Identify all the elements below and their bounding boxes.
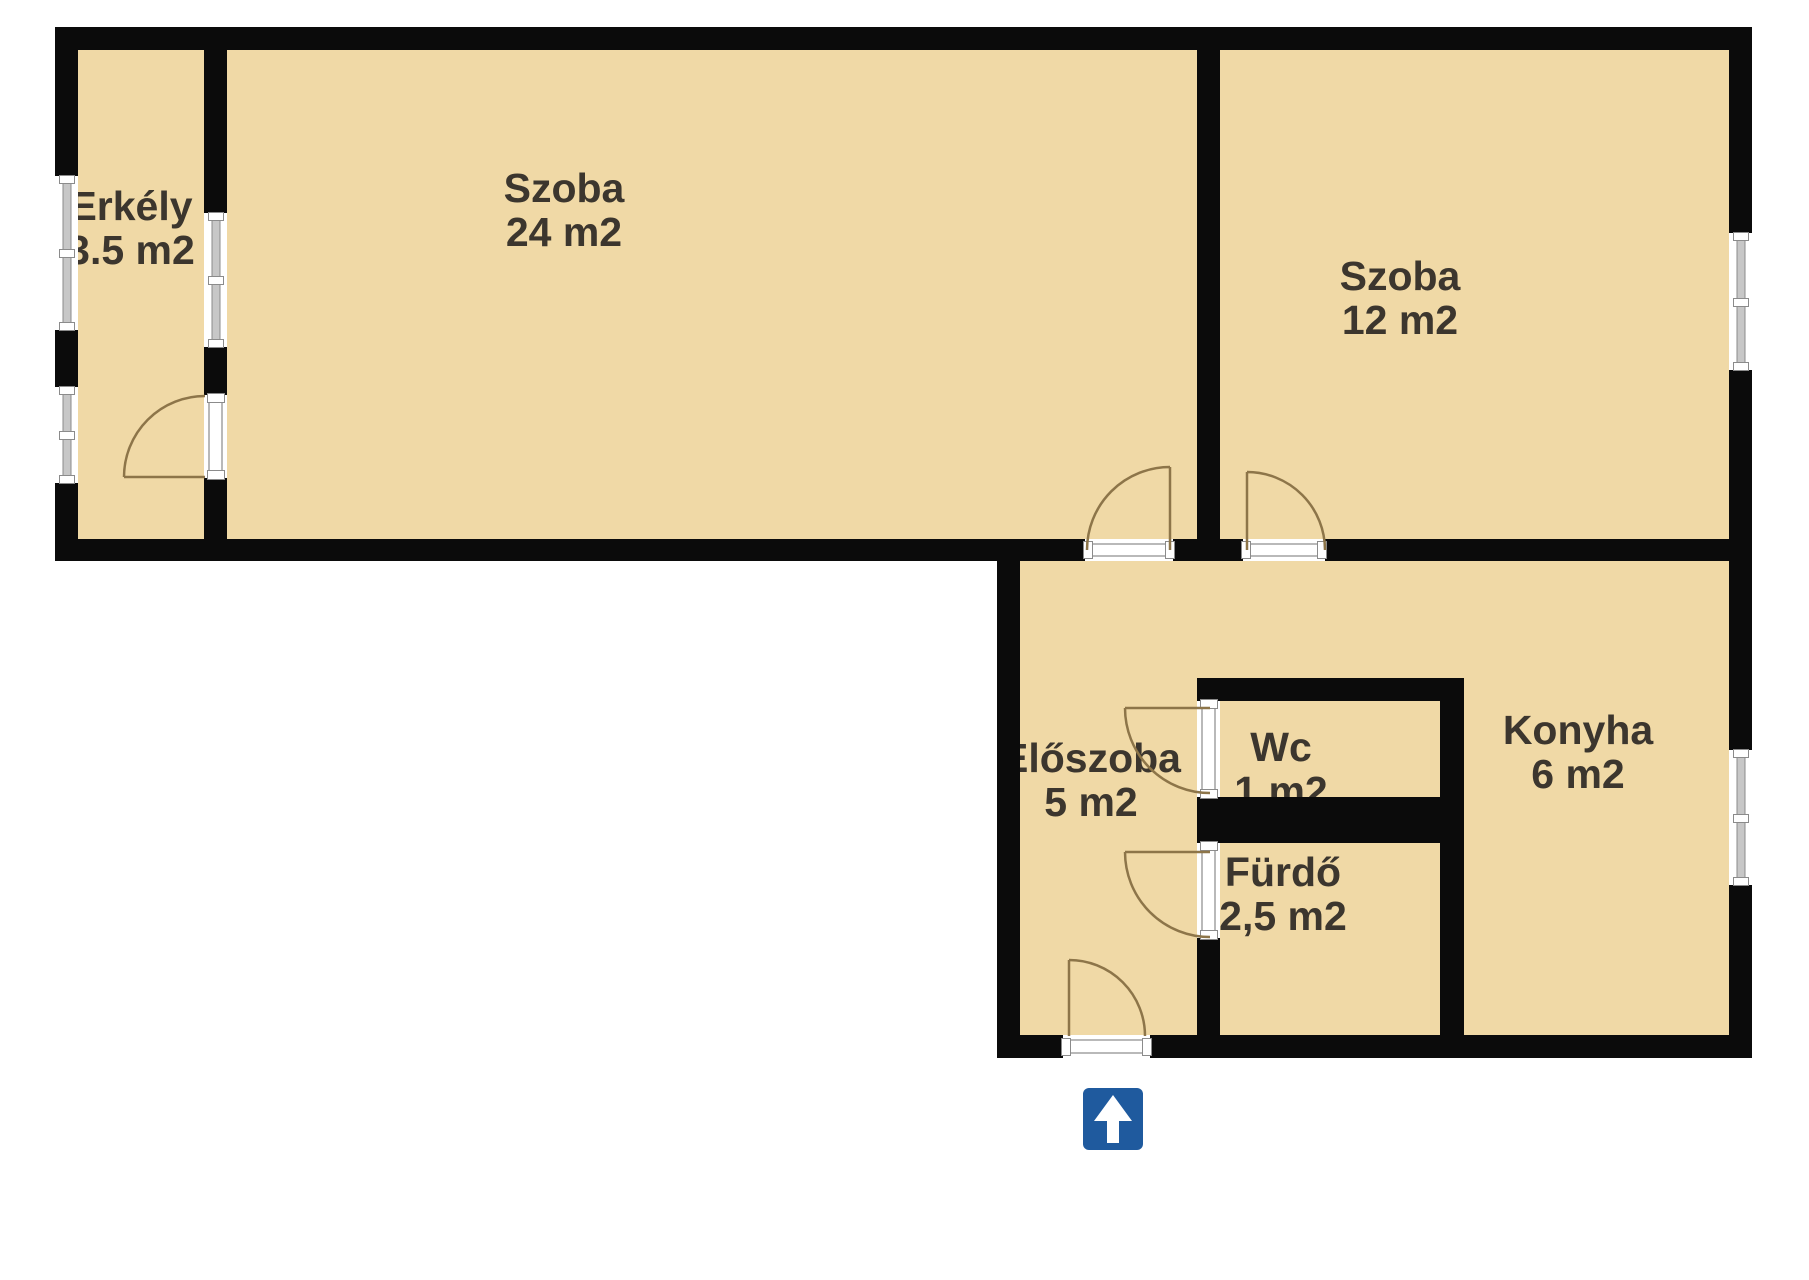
entrance-door-opening: [1063, 1035, 1150, 1058]
room-label-szoba-small: Szoba 12 m2: [1340, 254, 1461, 342]
room-name: Szoba: [1340, 253, 1461, 299]
room-label-furdo: Fürdő 2,5 m2: [1219, 850, 1347, 938]
floor-plan: Erkély 3.5 m2 Szoba 24 m2 Szoba 12 m2 El…: [0, 0, 1809, 1280]
szoba-small-door-opening: [1243, 539, 1325, 561]
room-label-erkely: Erkély 3.5 m2: [67, 184, 195, 272]
room-label-konyha: Konyha 6 m2: [1503, 708, 1653, 796]
room-area: 3.5 m2: [67, 227, 195, 273]
room-area: 12 m2: [1342, 297, 1458, 343]
balcony-door-opening: [204, 395, 227, 478]
room-name: Fürdő: [1225, 849, 1341, 895]
up-arrow-icon: [1083, 1088, 1143, 1150]
konyha-window: [1729, 750, 1752, 885]
room-name: Wc: [1250, 724, 1312, 770]
room-name: Előszoba: [1001, 735, 1181, 781]
room-label-eloszoba: Előszoba 5 m2: [1001, 736, 1181, 824]
room-label-szoba-large: Szoba 24 m2: [504, 166, 625, 254]
wall-eloszoba-furdo-lower: [1197, 938, 1220, 1058]
wall-wc-konyha: [1440, 678, 1464, 1058]
room-name: Szoba: [504, 165, 625, 211]
balcony-window-upper: [55, 176, 78, 330]
room-area: 6 m2: [1531, 751, 1624, 797]
wall-wc-top: [1197, 678, 1464, 701]
wall-mid-horizontal: [55, 539, 1752, 561]
room-area: 5 m2: [1044, 779, 1137, 825]
balcony-room-window: [204, 213, 227, 347]
wall-lower-left: [997, 561, 1020, 1058]
wc-door-opening: [1197, 701, 1220, 797]
wall-outer-top: [55, 27, 1752, 50]
wall-room-divider: [1197, 27, 1220, 561]
room-area: 24 m2: [506, 209, 622, 255]
room-floor-upper-block: [55, 27, 1752, 561]
room-name: Konyha: [1503, 707, 1653, 753]
room-area: 2,5 m2: [1219, 893, 1347, 939]
entrance-arrow-sign: [1083, 1088, 1143, 1150]
room-name: Erkély: [69, 183, 192, 229]
balcony-window-lower: [55, 387, 78, 483]
szoba-large-door-opening: [1085, 539, 1173, 561]
furdo-door-opening: [1197, 843, 1220, 938]
wall-wc-furdo: [1197, 797, 1464, 843]
szoba-small-window: [1729, 233, 1752, 370]
